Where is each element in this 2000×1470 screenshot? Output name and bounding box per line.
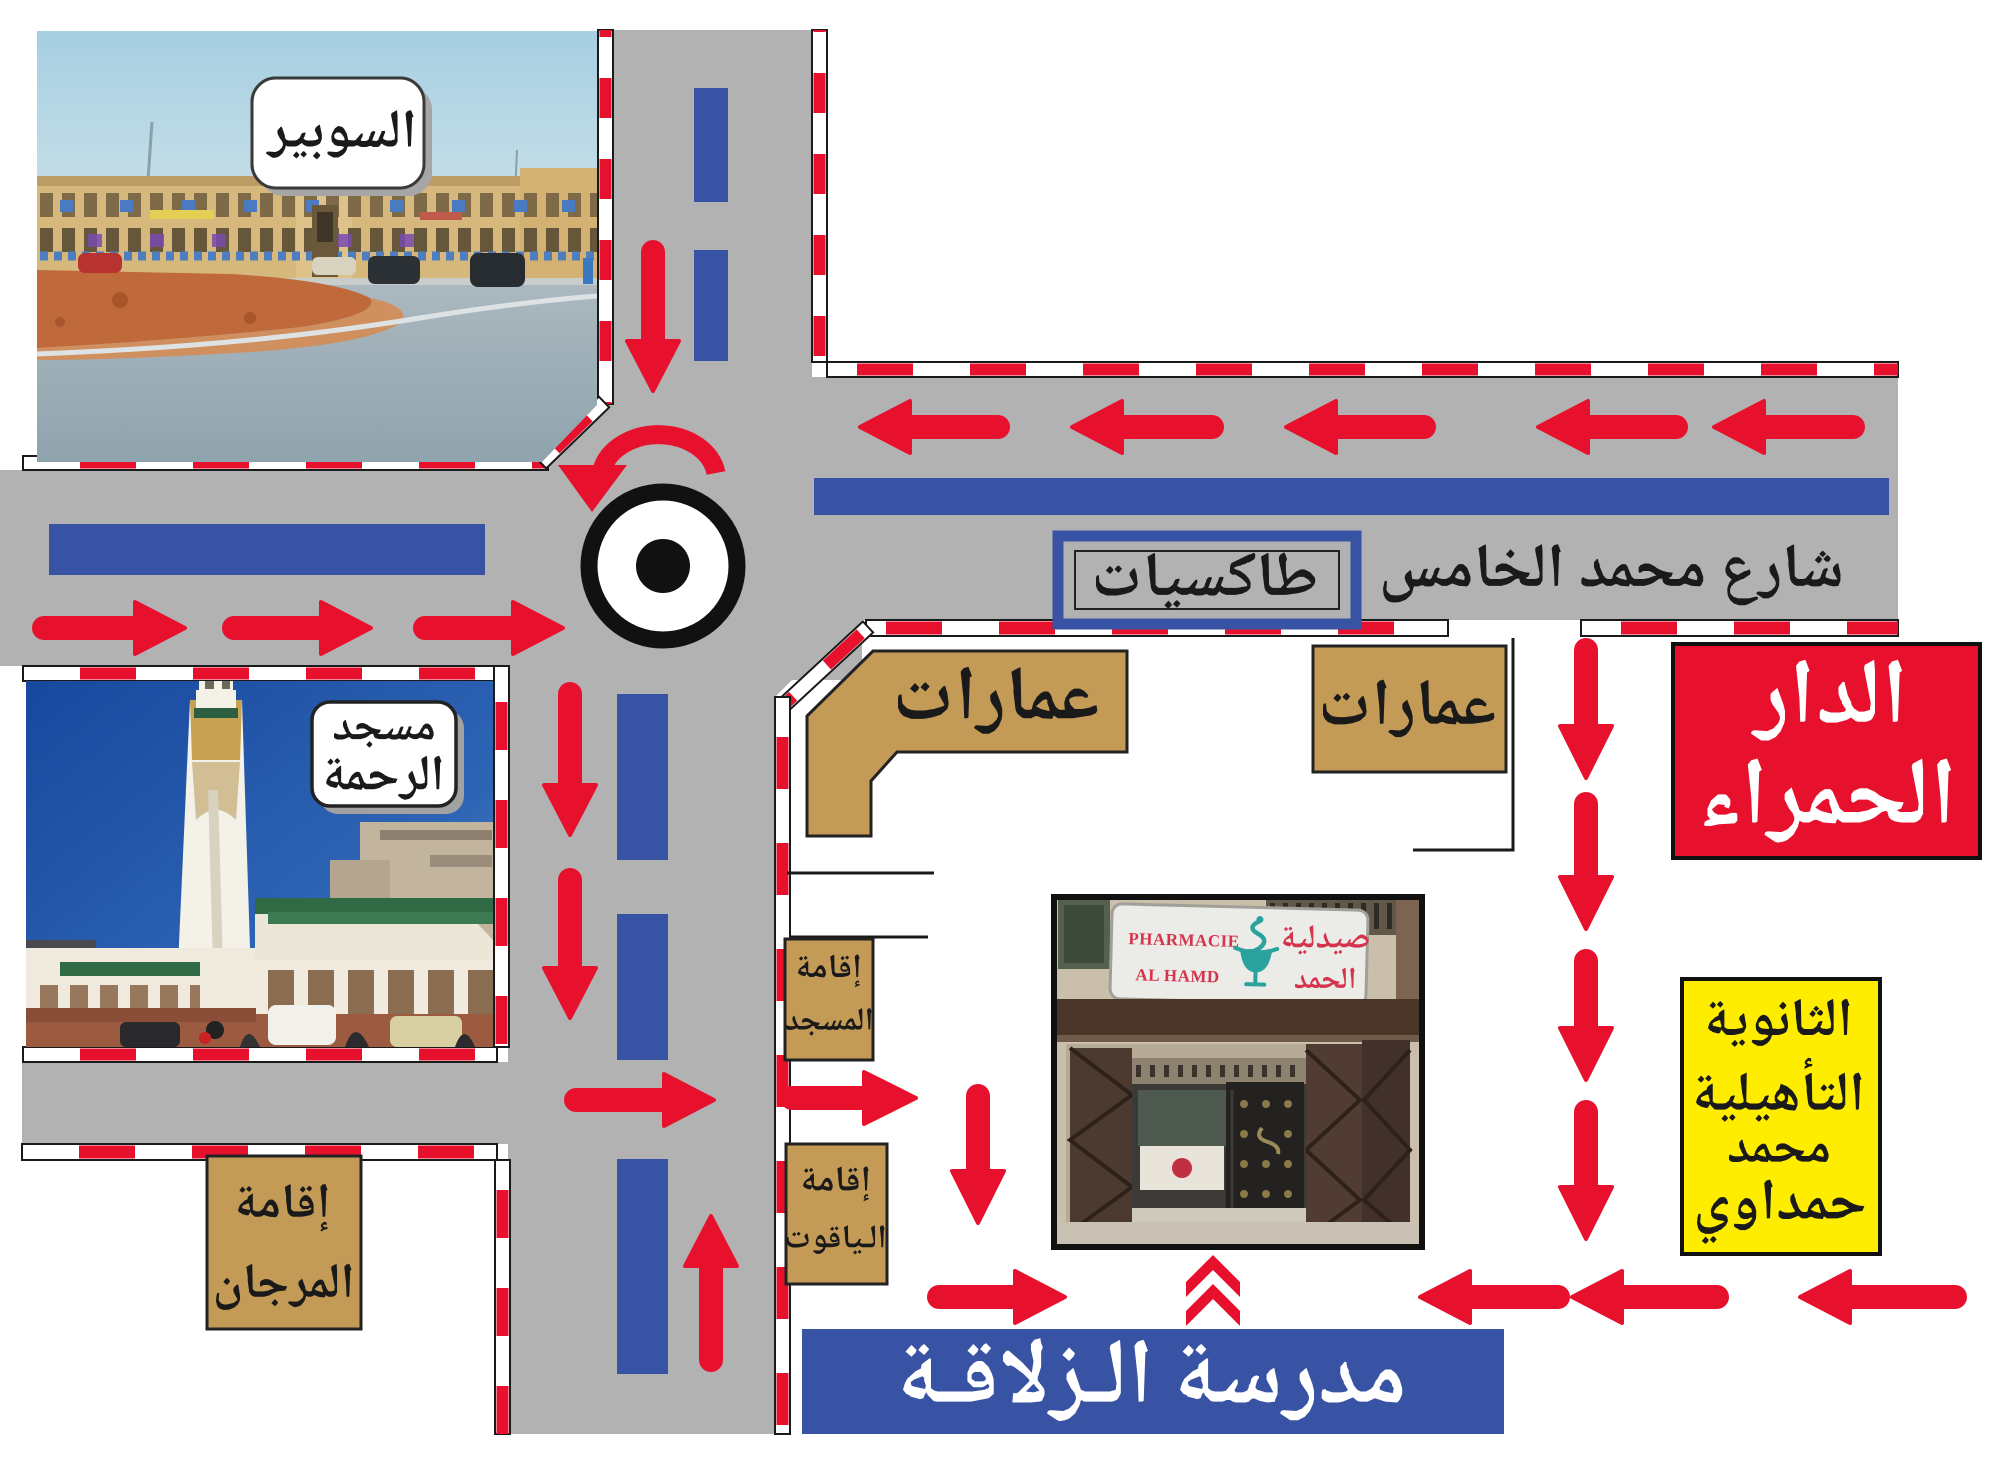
svg-text:PHARMACIE: PHARMACIE [1128, 929, 1240, 951]
svg-text:AL HAMD: AL HAMD [1135, 965, 1220, 986]
